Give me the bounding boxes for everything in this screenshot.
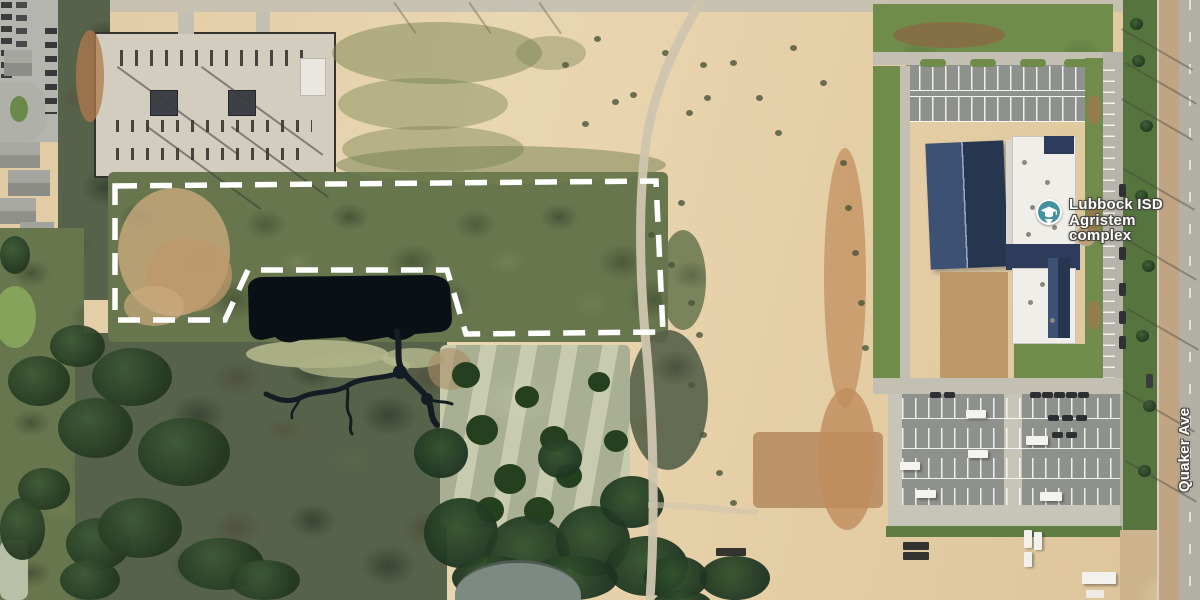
school-poi-icon[interactable] xyxy=(1036,199,1062,225)
satellite-map-canvas[interactable]: Lubbock ISD Agristem complex Quaker Ave xyxy=(0,0,1200,600)
street-name: Quaker Ave xyxy=(1176,408,1193,492)
graduation-cap-icon xyxy=(1038,201,1060,223)
poi-label-line1: Lubbock ISD xyxy=(1069,197,1200,213)
poi-label-line2: Agristem complex xyxy=(1069,213,1200,244)
street-label-quaker-ave: Quaker Ave xyxy=(1177,395,1193,505)
poi-label-lubbock-isd-agristem[interactable]: Lubbock ISD Agristem complex xyxy=(1036,199,1200,244)
